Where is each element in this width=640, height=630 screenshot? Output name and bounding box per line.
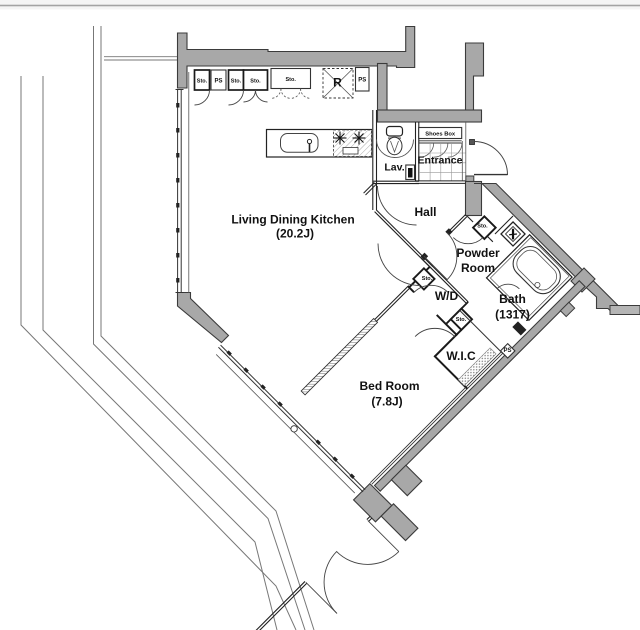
svg-text:Sto.: Sto. (422, 276, 433, 282)
svg-text:Entrance: Entrance (418, 155, 463, 167)
svg-text:Sto.: Sto. (231, 79, 242, 85)
svg-text:Powder: Powder (456, 246, 500, 260)
svg-text:PS: PS (214, 79, 222, 85)
svg-text:PS: PS (358, 78, 366, 84)
svg-text:W.I.C: W.I.C (446, 349, 476, 363)
svg-text:Bath: Bath (499, 292, 526, 306)
svg-text:Sto.: Sto. (250, 79, 261, 85)
svg-text:PS: PS (503, 348, 511, 354)
svg-text:Room: Room (461, 261, 495, 275)
svg-text:(1317): (1317) (495, 308, 530, 322)
svg-text:(7.8J): (7.8J) (371, 395, 402, 409)
svg-text:Sto.: Sto. (286, 77, 297, 83)
svg-text:R: R (333, 76, 342, 90)
svg-text:Living Dining Kitchen: Living Dining Kitchen (231, 213, 354, 227)
svg-text:Lav.: Lav. (384, 162, 404, 174)
svg-text:(20.2J): (20.2J) (276, 227, 314, 241)
svg-text:Sto.: Sto. (477, 224, 488, 230)
svg-text:Sto.: Sto. (456, 317, 467, 323)
svg-text:W/D: W/D (435, 289, 459, 303)
svg-text:Bed Room: Bed Room (360, 379, 420, 393)
svg-text:Shoes Box: Shoes Box (425, 132, 456, 138)
svg-text:Sto.: Sto. (197, 79, 208, 85)
svg-text:Hall: Hall (414, 205, 436, 219)
